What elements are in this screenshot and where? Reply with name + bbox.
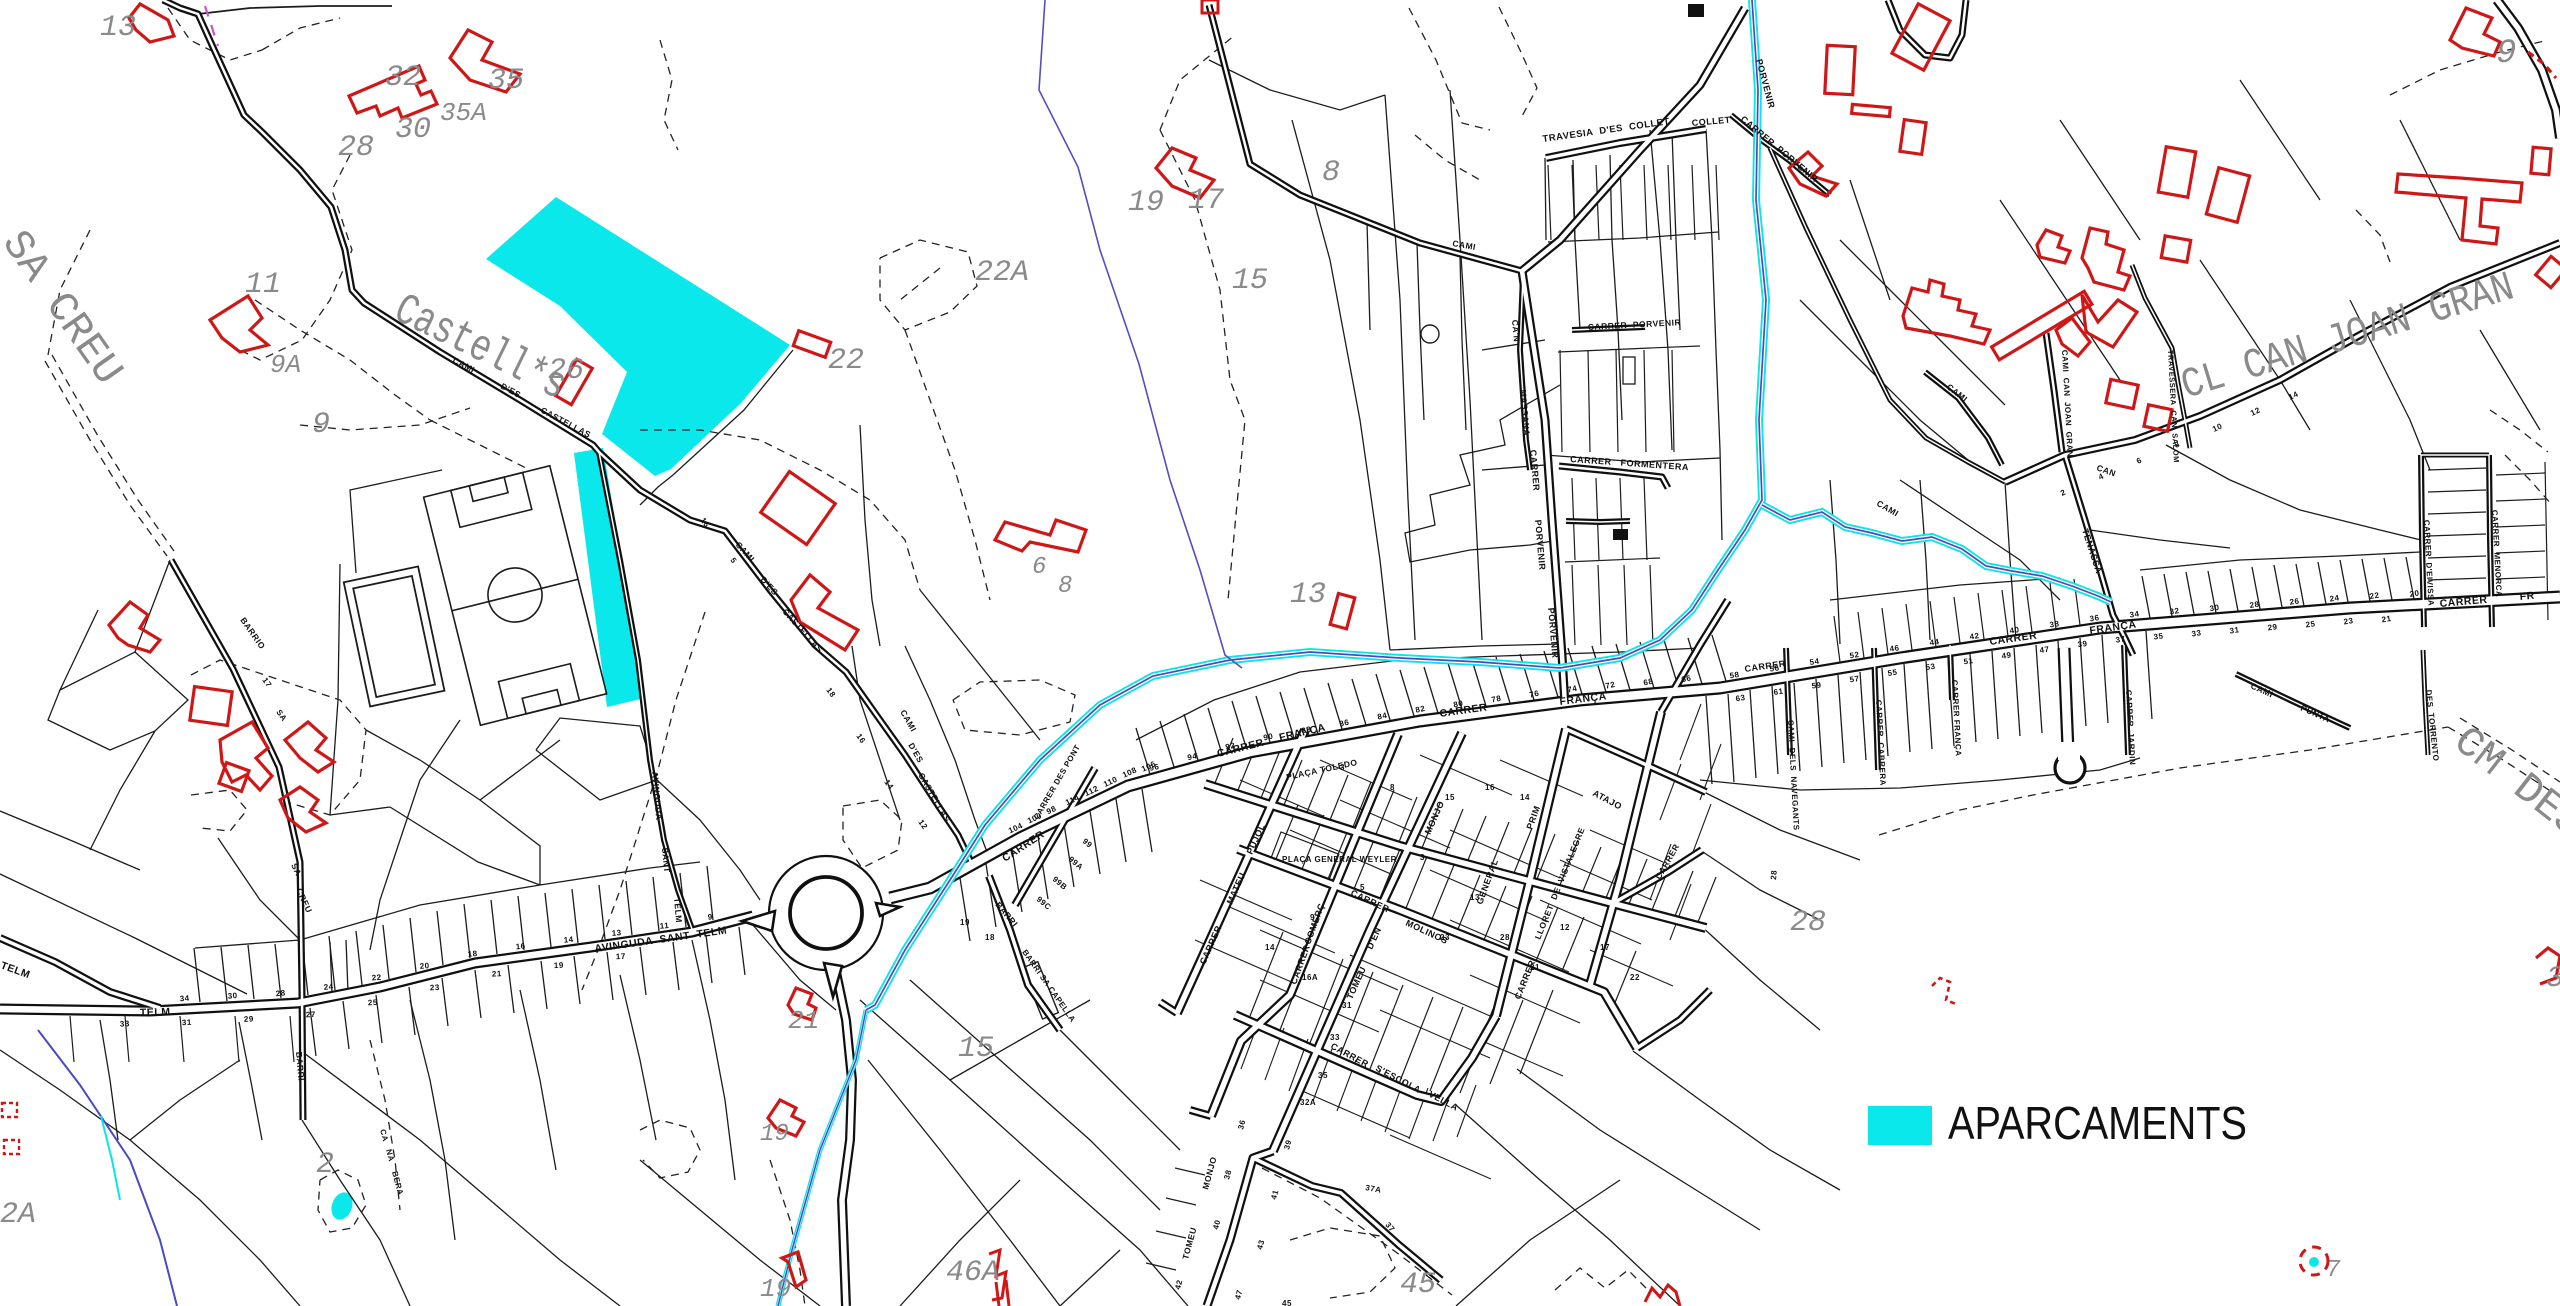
svg-text:11: 11 [659, 921, 669, 931]
svg-text:19: 19 [554, 961, 564, 971]
svg-text:36: 36 [2089, 613, 2100, 623]
svg-text:28: 28 [275, 988, 286, 998]
svg-text:32A: 32A [1300, 1098, 1316, 1107]
svg-text:28: 28 [1790, 906, 1826, 940]
svg-text:29: 29 [244, 1014, 254, 1024]
svg-text:20: 20 [419, 961, 430, 971]
svg-text:19: 19 [760, 1121, 789, 1148]
svg-text:18: 18 [467, 949, 478, 959]
svg-text:56: 56 [1769, 663, 1780, 673]
svg-text:30: 30 [395, 113, 431, 147]
svg-text:28: 28 [2249, 600, 2260, 610]
svg-text:27: 27 [306, 1010, 316, 1020]
svg-text:22: 22 [2369, 591, 2380, 601]
svg-text:22A: 22A [975, 256, 1029, 290]
svg-text:29: 29 [2267, 622, 2278, 632]
svg-text:37: 37 [2115, 634, 2126, 644]
svg-text:31: 31 [182, 1018, 192, 1028]
svg-text:12: 12 [1560, 923, 1570, 932]
svg-text:9: 9 [312, 408, 330, 442]
svg-text:7: 7 [2326, 1257, 2341, 1284]
svg-text:13: 13 [1290, 578, 1326, 612]
svg-text:8: 8 [1322, 156, 1340, 190]
svg-text:35: 35 [1318, 1071, 1328, 1080]
svg-text:11: 11 [245, 268, 281, 302]
svg-text:45: 45 [1282, 1299, 1292, 1306]
svg-text:15: 15 [1232, 264, 1268, 298]
svg-text:15: 15 [958, 1032, 994, 1066]
svg-text:46: 46 [1889, 643, 1900, 653]
svg-text:33: 33 [1330, 1033, 1340, 1042]
svg-text:44: 44 [1929, 637, 1940, 647]
svg-text:6: 6 [1032, 554, 1046, 581]
svg-text:33: 33 [2191, 628, 2202, 638]
svg-text:33: 33 [120, 1019, 130, 1029]
svg-text:47: 47 [2039, 645, 2050, 655]
svg-text:13: 13 [100, 11, 136, 45]
svg-text:24: 24 [2329, 593, 2340, 603]
svg-text:14: 14 [563, 935, 574, 945]
svg-text:13: 13 [611, 928, 622, 938]
svg-text:51: 51 [1963, 656, 1974, 666]
svg-text:8: 8 [1058, 573, 1072, 600]
svg-text:19: 19 [1128, 186, 1164, 220]
svg-text:34: 34 [179, 994, 190, 1004]
svg-text:42: 42 [1969, 631, 1980, 641]
svg-text:9: 9 [707, 912, 713, 921]
svg-text:34: 34 [2129, 609, 2140, 619]
svg-text:23: 23 [1440, 933, 1450, 942]
svg-text:8: 8 [1390, 783, 1395, 792]
svg-text:53: 53 [1925, 662, 1936, 672]
svg-text:CA'N: CA'N [1510, 319, 1522, 342]
svg-text:19: 19 [960, 918, 970, 927]
svg-text:21: 21 [788, 1006, 819, 1036]
svg-text:30: 30 [2209, 603, 2220, 613]
svg-text:49: 49 [2001, 650, 2012, 660]
svg-text:39: 39 [2077, 639, 2088, 649]
svg-text:54: 54 [1809, 657, 1820, 667]
svg-text:28: 28 [338, 131, 374, 165]
svg-text:23: 23 [430, 983, 440, 993]
svg-text:APARCAMENTS: APARCAMENTS [1948, 1097, 2247, 1149]
svg-text:15: 15 [1445, 793, 1455, 802]
svg-text:40: 40 [2009, 625, 2020, 635]
svg-text:16: 16 [1485, 783, 1495, 792]
svg-text:32: 32 [2169, 606, 2180, 616]
svg-text:16A: 16A [1302, 973, 1318, 982]
svg-text:20: 20 [2409, 589, 2420, 599]
svg-text:16: 16 [515, 942, 526, 952]
svg-text:FR: FR [2519, 590, 2535, 603]
svg-text:17: 17 [616, 952, 626, 962]
svg-text:58: 58 [1729, 670, 1740, 680]
svg-text:23: 23 [2343, 616, 2354, 626]
svg-text:31: 31 [2229, 625, 2240, 635]
svg-text:52: 52 [1849, 650, 1860, 660]
svg-text:55: 55 [1887, 668, 1898, 678]
svg-text:35A: 35A [440, 98, 487, 128]
svg-text:30: 30 [227, 991, 238, 1001]
svg-text:38: 38 [2049, 619, 2060, 629]
svg-text:14: 14 [1265, 943, 1275, 952]
svg-text:9A: 9A [270, 350, 301, 380]
svg-text:57: 57 [1849, 674, 1860, 684]
svg-text:14: 14 [1520, 793, 1530, 802]
svg-text:26: 26 [548, 354, 584, 388]
svg-text:9: 9 [1310, 913, 1315, 922]
svg-text:46A: 46A [946, 1256, 1000, 1290]
svg-text:35: 35 [2153, 631, 2164, 641]
svg-text:21: 21 [492, 969, 502, 979]
svg-text:3: 3 [1340, 763, 1345, 772]
svg-text:22: 22 [371, 973, 382, 983]
svg-text:2A: 2A [0, 1198, 36, 1232]
svg-text:45: 45 [1400, 1268, 1436, 1302]
svg-text:28: 28 [1769, 869, 1779, 880]
svg-text:19: 19 [760, 1274, 791, 1304]
svg-text:31: 31 [1342, 1001, 1352, 1010]
svg-text:28: 28 [1500, 933, 1510, 942]
svg-text:32: 32 [385, 61, 421, 95]
svg-text:3: 3 [1420, 853, 1425, 862]
svg-text:TELM: TELM [140, 1006, 171, 1019]
svg-text:61: 61 [1773, 687, 1784, 697]
svg-text:17: 17 [1600, 943, 1610, 952]
svg-text:2: 2 [316, 1148, 334, 1182]
svg-text:3: 3 [2546, 962, 2560, 996]
svg-text:9: 9 [2496, 35, 2516, 73]
svg-text:59: 59 [1811, 680, 1822, 690]
svg-text:35: 35 [488, 64, 524, 98]
svg-text:24: 24 [323, 982, 334, 992]
svg-text:25: 25 [2305, 619, 2316, 629]
svg-text:26: 26 [2289, 596, 2300, 606]
svg-text:18: 18 [985, 933, 995, 942]
svg-text:21: 21 [2381, 614, 2392, 624]
svg-text:5: 5 [1360, 883, 1365, 892]
svg-text:25: 25 [368, 998, 378, 1008]
svg-text:21: 21 [1530, 963, 1540, 972]
svg-text:PLAÇA GENERAL WEYLER: PLAÇA GENERAL WEYLER [1282, 855, 1397, 864]
svg-text:22: 22 [1630, 973, 1640, 982]
svg-text:22: 22 [828, 344, 864, 378]
svg-text:13: 13 [1470, 893, 1480, 902]
svg-text:63: 63 [1735, 693, 1746, 703]
svg-text:17: 17 [1188, 184, 1224, 218]
